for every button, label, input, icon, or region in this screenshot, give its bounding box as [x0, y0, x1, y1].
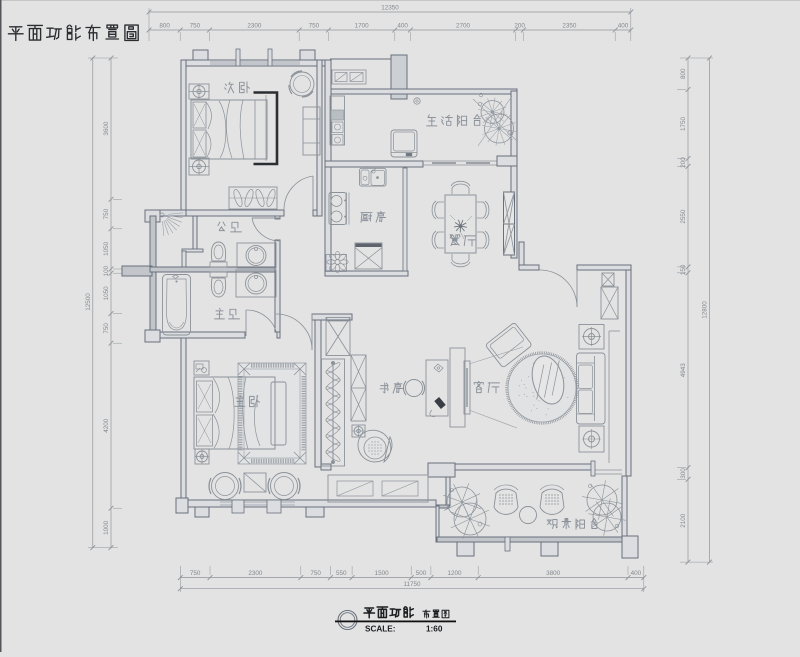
svg-text:150: 150: [680, 264, 687, 275]
svg-text:500: 500: [416, 570, 427, 577]
svg-text:400: 400: [397, 23, 408, 30]
svg-text:1050: 1050: [103, 241, 110, 256]
svg-text:2550: 2550: [680, 209, 687, 224]
svg-text:4200: 4200: [103, 418, 110, 433]
svg-text:750: 750: [103, 323, 110, 334]
svg-text:200: 200: [514, 23, 525, 30]
svg-text:750: 750: [190, 23, 201, 30]
svg-text:300: 300: [680, 468, 687, 479]
svg-text:750: 750: [309, 23, 320, 30]
svg-text:1700: 1700: [355, 23, 370, 30]
svg-text:750: 750: [190, 570, 201, 577]
svg-text:1000: 1000: [103, 520, 110, 535]
svg-text:2300: 2300: [247, 23, 262, 30]
svg-text:12350: 12350: [381, 5, 399, 12]
svg-text:400: 400: [618, 23, 629, 30]
svg-text:2100: 2100: [680, 513, 687, 528]
svg-text:12500: 12500: [85, 293, 92, 311]
svg-text:800: 800: [159, 23, 170, 30]
svg-text:2700: 2700: [456, 23, 471, 30]
svg-text:3600: 3600: [103, 121, 110, 136]
svg-text:12800: 12800: [702, 301, 709, 319]
svg-text:750: 750: [103, 208, 110, 219]
svg-text:SCALE:: SCALE:: [365, 625, 395, 634]
svg-text:550: 550: [336, 570, 347, 577]
svg-text:1750: 1750: [680, 117, 687, 132]
svg-text:400: 400: [631, 570, 642, 577]
svg-text:1:60: 1:60: [426, 625, 443, 634]
svg-text:3800: 3800: [546, 570, 561, 577]
svg-text:2350: 2350: [562, 23, 577, 30]
svg-text:2300: 2300: [248, 570, 263, 577]
svg-text:800: 800: [680, 68, 687, 79]
svg-text:750: 750: [310, 570, 321, 577]
svg-text:100: 100: [103, 265, 110, 276]
svg-text:4943: 4943: [680, 363, 687, 378]
svg-text:1050: 1050: [103, 286, 110, 301]
svg-text:11750: 11750: [403, 581, 421, 588]
svg-text:1500: 1500: [375, 570, 390, 577]
svg-text:1200: 1200: [448, 570, 463, 577]
